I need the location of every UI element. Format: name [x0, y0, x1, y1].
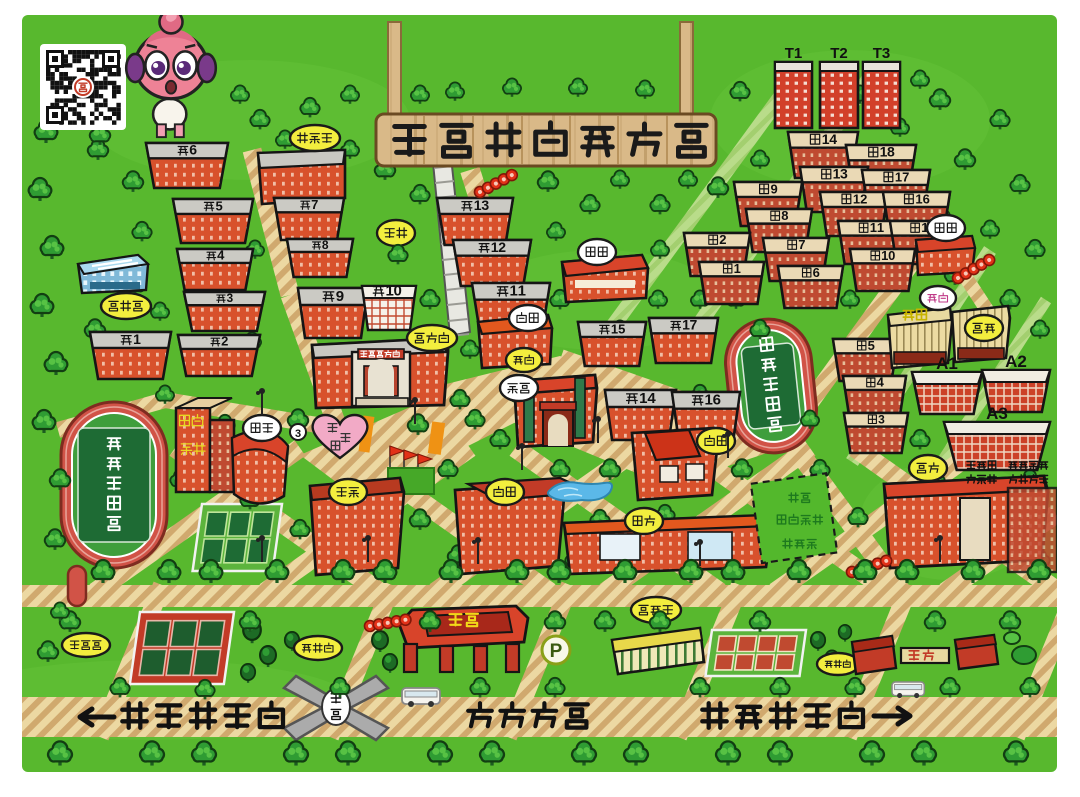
svg-text:1: 1: [518, 283, 526, 300]
svg-text:2: 2: [719, 232, 726, 247]
svg-text:3: 3: [481, 197, 489, 213]
svg-text:1: 1: [639, 390, 647, 407]
svg-text:4: 4: [647, 390, 656, 407]
svg-text:1: 1: [853, 191, 860, 206]
svg-text:4: 4: [829, 131, 837, 147]
svg-text:2: 2: [221, 334, 228, 349]
svg-text:7: 7: [798, 237, 805, 252]
svg-text:1: 1: [611, 321, 618, 336]
svg-text:5: 5: [618, 321, 625, 336]
svg-text:A3: A3: [986, 404, 1008, 423]
svg-text:6: 6: [189, 142, 197, 158]
svg-text:2: 2: [860, 191, 867, 206]
svg-text:T1: T1: [785, 45, 803, 62]
svg-text:T2: T2: [830, 45, 848, 62]
svg-text:7: 7: [690, 317, 698, 333]
svg-text:1: 1: [133, 331, 141, 347]
svg-text:9: 9: [336, 288, 344, 305]
svg-text:2: 2: [498, 239, 506, 255]
svg-text:5: 5: [215, 198, 222, 213]
svg-text:3: 3: [878, 412, 885, 426]
svg-text:8: 8: [887, 144, 895, 160]
svg-text:7: 7: [902, 169, 909, 184]
svg-text:6: 6: [713, 392, 721, 409]
svg-text:1: 1: [705, 392, 713, 409]
svg-text:6: 6: [813, 265, 820, 280]
svg-text:3: 3: [295, 428, 301, 440]
svg-text:1: 1: [734, 261, 741, 276]
svg-text:1: 1: [895, 169, 902, 184]
svg-text:5: 5: [868, 338, 875, 353]
svg-text:A2: A2: [1005, 352, 1027, 371]
svg-text:8: 8: [322, 238, 329, 252]
svg-text:6: 6: [923, 191, 930, 206]
svg-text:0: 0: [888, 248, 895, 263]
svg-text:3: 3: [227, 291, 234, 305]
svg-text:1: 1: [877, 220, 884, 235]
svg-text:3: 3: [840, 166, 848, 182]
svg-text:A1: A1: [936, 354, 958, 373]
svg-text:4: 4: [217, 248, 225, 263]
svg-text:P: P: [550, 641, 563, 662]
svg-text:8: 8: [781, 208, 788, 223]
svg-text:T3: T3: [873, 45, 891, 62]
svg-text:7: 7: [311, 197, 318, 212]
svg-text:1: 1: [915, 191, 922, 206]
svg-text:1: 1: [510, 283, 518, 300]
svg-text:9: 9: [770, 181, 777, 196]
svg-text:4: 4: [877, 375, 885, 390]
svg-text:0: 0: [394, 282, 402, 299]
